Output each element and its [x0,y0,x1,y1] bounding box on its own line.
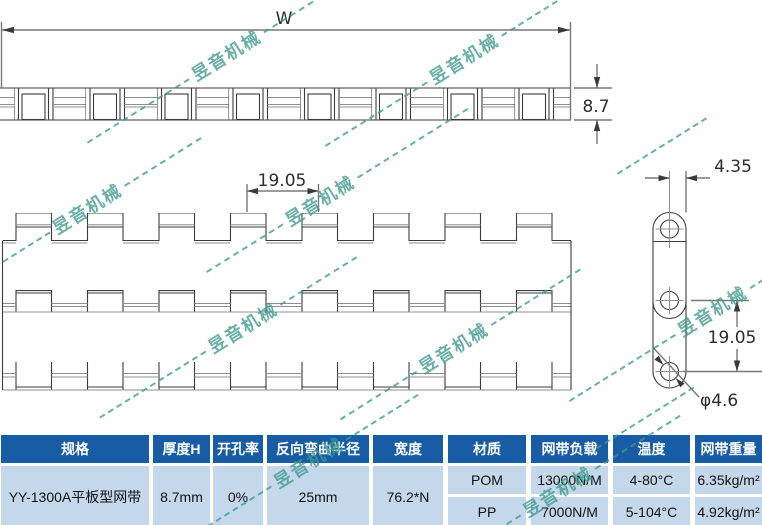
technical-drawing: W 8.7 19.05 [0,0,762,435]
header-temperature: 温度 [613,435,690,463]
load-pom: 13000N/M [531,466,608,494]
dim-thickness: 8.7 [574,64,612,144]
header-thickness: 厚度H [153,435,210,463]
dim-thickness-label: 8.7 [582,97,609,117]
dim-overall-width-label: W [276,9,293,29]
material-pp: PP [448,497,526,525]
spec-thickness: 8.7mm [153,466,210,525]
header-weight: 网带重量 [695,435,762,463]
header-spec: 规格 [1,435,149,463]
temperature-pom: 4-80°C [613,466,690,494]
header-width: 宽度 [373,435,443,463]
spec-name: YY-1300A平板型网带 [1,466,149,525]
dim-hole-pitch-label: 19.05 [708,328,757,348]
belt-plan-view [3,213,572,391]
material-pom: POM [448,466,526,494]
weight-pp: 4.92kg/m² [695,497,762,525]
spec-bend-radius: 25mm [267,466,369,525]
dim-pitch: 19.05 [247,171,319,212]
spec-sheet: W 8.7 19.05 [0,0,762,525]
link-plate-view [653,171,686,388]
temperature-pp: 5-104°C [613,497,690,525]
dim-plate-offset: 4.35 [645,157,752,213]
header-load: 网带负载 [531,435,608,463]
dim-pitch-label: 19.05 [258,171,307,191]
belt-side-view [0,88,571,120]
dim-hole-diameter-label: φ4.6 [700,391,738,411]
header-material: 材质 [448,435,526,463]
header-open-rate: 开孔率 [213,435,263,463]
load-pp: 7000N/M [531,497,608,525]
dim-plate-offset-label: 4.35 [714,157,752,177]
header-bend-radius: 反向弯曲半径 [267,435,369,463]
spec-width: 76.2*N [373,466,443,525]
weight-pom: 6.35kg/m² [695,466,762,494]
spec-open-rate: 0% [213,466,263,525]
dim-hole-pitch: 19.05 [683,301,762,372]
